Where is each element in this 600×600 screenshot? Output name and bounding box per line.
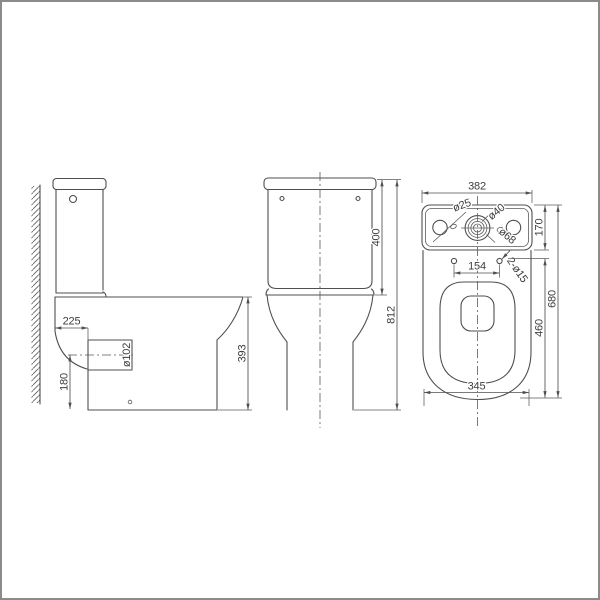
image-border	[1, 1, 599, 599]
dim-label-680: 680	[547, 290, 559, 308]
dim-label-154: 154	[468, 261, 486, 273]
wall-section	[32, 185, 41, 404]
dim-label-outlet-diameter: ø102	[121, 343, 133, 367]
drawing-page: 225 ø102 180 393 400	[0, 0, 600, 600]
dim-label-400: 400	[371, 229, 383, 247]
dim-label-812: 812	[386, 306, 398, 324]
dim-label-460: 460	[534, 319, 546, 337]
technical-drawing: 225 ø102 180 393 400	[0, 0, 600, 600]
dim-label-170: 170	[534, 219, 546, 237]
dim-label-382: 382	[468, 181, 486, 193]
dim-label-345: 345	[468, 381, 486, 393]
dim-label-393: 393	[237, 345, 249, 363]
dim-label-180: 180	[59, 373, 71, 391]
wall-hatching	[32, 186, 41, 403]
dim-label-225: 225	[63, 316, 81, 328]
